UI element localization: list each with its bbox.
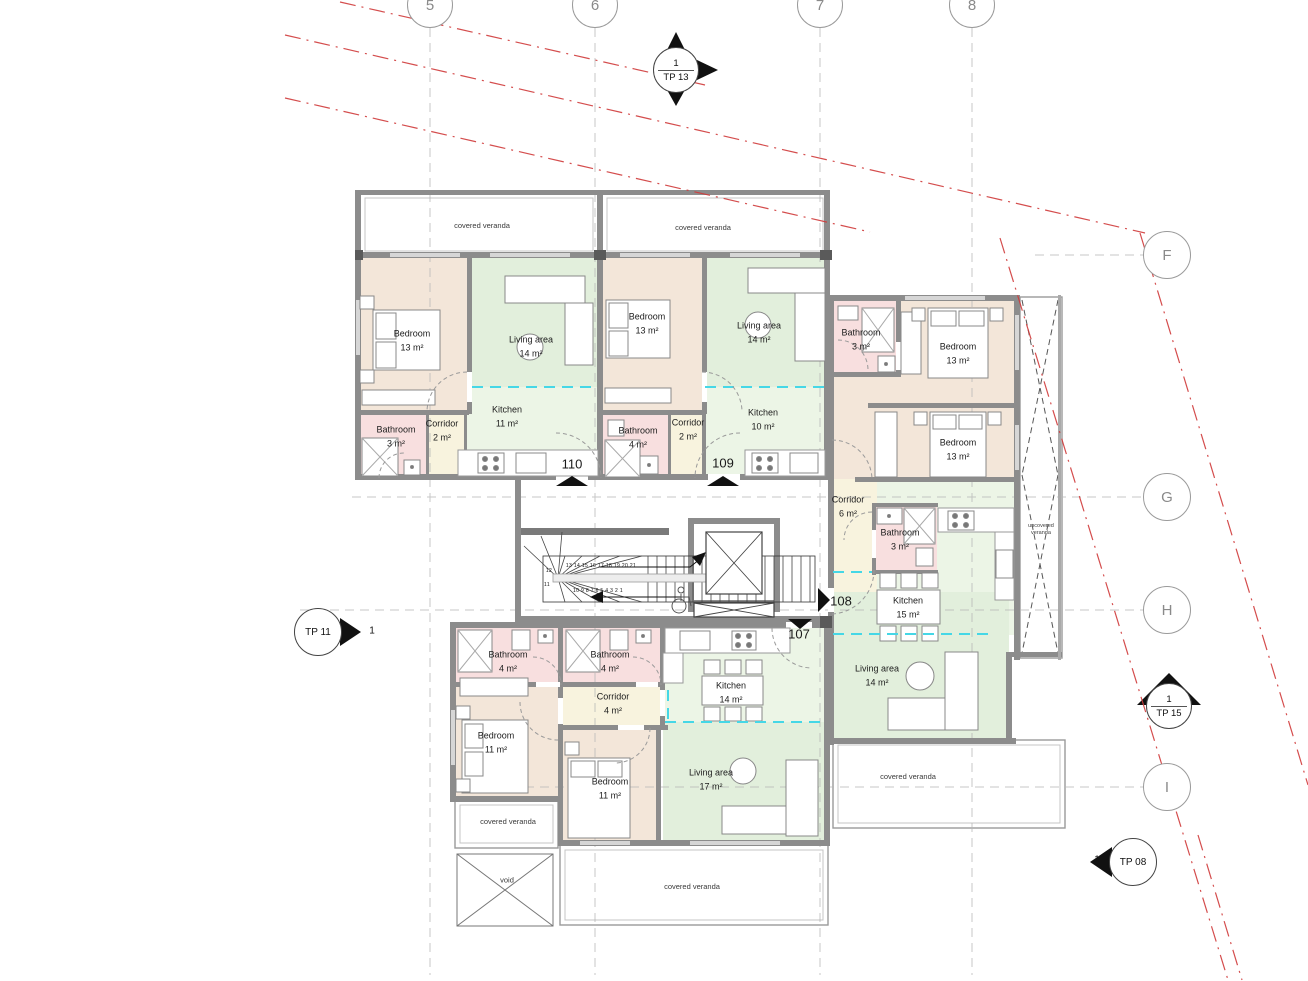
section-label: TP 11 <box>305 627 331 638</box>
section-marker-tp13: 1 TP 13 <box>653 47 699 93</box>
grid-row-f: F <box>1143 231 1191 279</box>
section-label: TP 13 <box>663 71 688 83</box>
grid-row-h: H <box>1143 586 1191 634</box>
section-number: 1 <box>1094 855 1100 866</box>
section-marker-tp15: 1 TP 15 <box>1146 683 1192 729</box>
section-label: TP 15 <box>1156 707 1181 719</box>
staircase <box>524 532 815 603</box>
section-number: 1 <box>369 626 375 637</box>
section-number: 1 <box>658 58 693 71</box>
floor-plan-canvas: 5 6 7 8 F G H I 1 TP 13 TP 11 1 1 TP 15 … <box>0 0 1308 981</box>
elevator <box>694 532 774 617</box>
section-label: TP 08 <box>1120 857 1147 868</box>
section-marker-tp08: TP 08 <box>1109 838 1157 886</box>
void-area <box>457 854 553 926</box>
grid-row-i: I <box>1143 763 1191 811</box>
floor-plan-drawing <box>0 0 1308 981</box>
grid-row-g: G <box>1143 473 1191 521</box>
section-marker-tp11: TP 11 <box>294 608 342 656</box>
section-number: 1 <box>1151 694 1186 707</box>
